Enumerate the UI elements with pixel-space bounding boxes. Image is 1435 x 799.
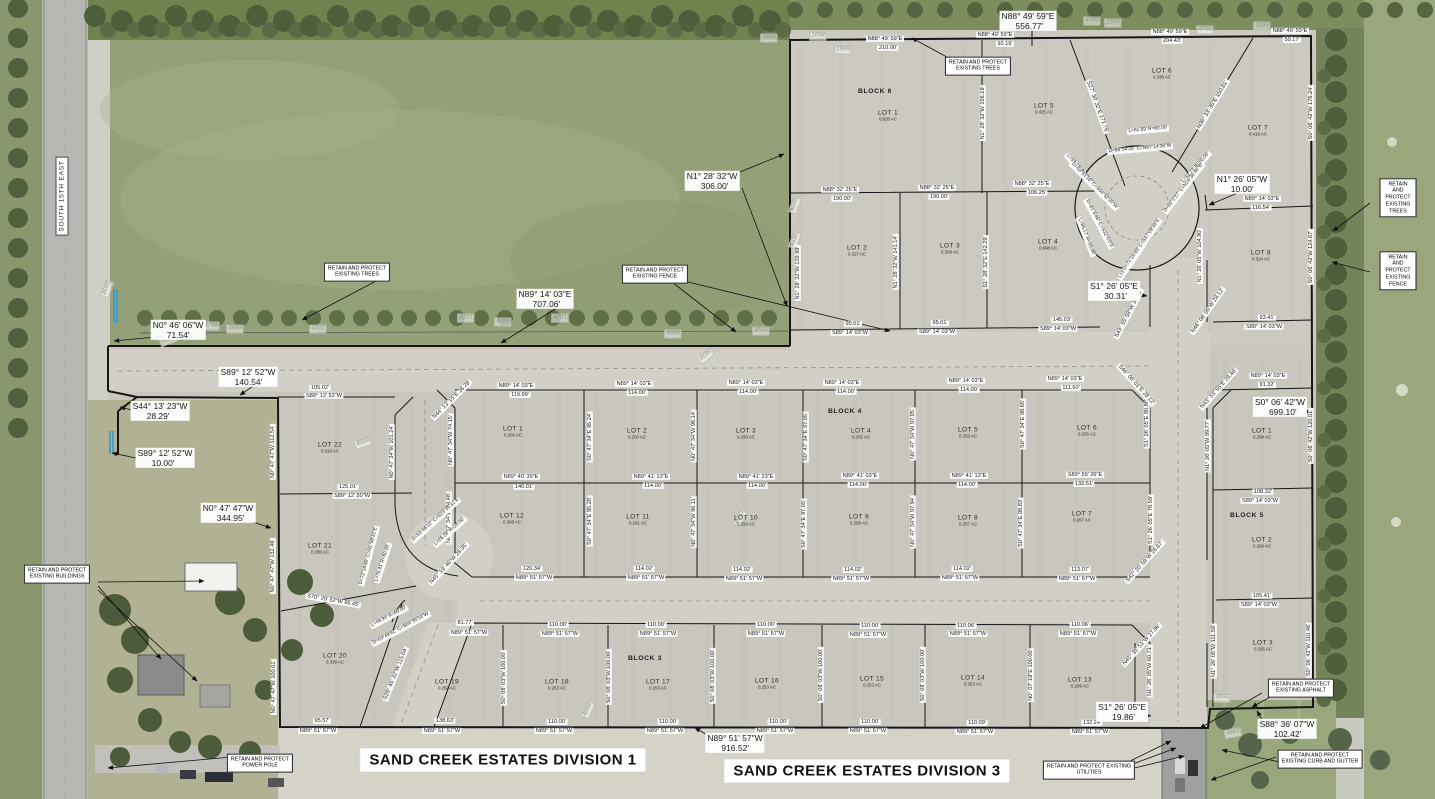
lot-label: LOT 150.253 AC bbox=[860, 676, 884, 689]
dim-label: N0° 47' 47"W 132.46' bbox=[270, 538, 276, 594]
dim-label: 114.02' bbox=[732, 567, 753, 573]
contour-label: 4698 bbox=[664, 330, 681, 339]
dim-label: S0° 08' 03"W 100.00' bbox=[710, 648, 716, 704]
bearing-callout: N88° 49' 59"E556.77' bbox=[1000, 11, 1057, 31]
lot-label: LOT 80.257 AC bbox=[958, 515, 978, 528]
dim-label: 114.00' bbox=[836, 389, 857, 395]
contour-label: 4699 bbox=[752, 327, 769, 336]
dim-label: N0° 47' 34"W 96.11' bbox=[691, 496, 697, 548]
lot-label: LOT 220.318 AC bbox=[318, 442, 342, 455]
dim-label: S89° 14' 03"W bbox=[1240, 498, 1279, 504]
dim-label: N1° 26' 05"W 104.90' bbox=[1197, 228, 1203, 284]
contour-label: 4693 bbox=[1213, 694, 1230, 703]
dim-label: N36° 33' 35"E 150.81' bbox=[1195, 79, 1230, 132]
dim-label: 81.77' bbox=[456, 620, 474, 626]
lot-label: LOT 30.250 AC bbox=[736, 428, 756, 441]
block-label: BLOCK 3 bbox=[626, 655, 663, 663]
bearing-callout: S89° 12' 52"W10.00' bbox=[136, 448, 195, 468]
dim-label: S0° 06' 42"W 120.01' bbox=[1308, 408, 1314, 464]
contour-label: 4693 bbox=[1224, 727, 1243, 739]
bearing-callout: S0° 06' 42"W699.10' bbox=[1253, 397, 1307, 417]
dim-label: 108.32' bbox=[1252, 489, 1273, 495]
dim-label: N43° 55' 55"E 28.46' bbox=[1198, 367, 1239, 412]
dim-label: N45° 19' 46"W 28.05' bbox=[428, 541, 471, 586]
lot-label: LOT 110.261 AC bbox=[626, 514, 649, 527]
lot-label: LOT 70.267 AC bbox=[1072, 511, 1092, 524]
dim-label: 110.00' bbox=[646, 622, 667, 628]
dim-label: S89° 12' 52"W bbox=[304, 393, 343, 399]
dim-label: N89° 51' 57"W bbox=[848, 632, 887, 638]
lot-label: LOT 10.820 AC bbox=[878, 110, 898, 123]
lot-label: LOT 170.253 AC bbox=[646, 679, 670, 692]
dim-label: S0° 08' 03"W 100.00' bbox=[920, 647, 926, 703]
dim-label: 110.09' bbox=[967, 720, 988, 726]
dim-label: 190.00' bbox=[831, 196, 852, 202]
dim-label: N0° 47' 34"W 96.14' bbox=[691, 410, 697, 463]
dim-label: N1° 28' 32"W 139.99' bbox=[795, 245, 801, 301]
dim-label: 95.01' bbox=[931, 320, 949, 326]
dim-label: S0° 47' 34"E 97.05' bbox=[801, 498, 807, 549]
dim-label: N89° 51' 57"W bbox=[724, 576, 763, 582]
dim-label: S89° 14' 03"W bbox=[1239, 602, 1278, 608]
street-name-label: SOUTH 15TH EAST bbox=[56, 156, 69, 235]
lot-label: LOT 10.298 AC bbox=[1252, 428, 1272, 441]
plat-map-screenshot: 4698169816994700169947001699470147004701… bbox=[0, 0, 1435, 799]
dim-label: S89° 14' 03"W bbox=[830, 330, 869, 336]
dim-label: N89° 41' 03"E bbox=[841, 473, 879, 479]
dim-label: N0° 47' 34"W 97.94' bbox=[910, 496, 916, 549]
lot-label: LOT 30.265 AC bbox=[1253, 640, 1273, 653]
dim-label: S89° 59' 26"E bbox=[1066, 472, 1104, 478]
lot-label: LOT 60.256 AC bbox=[1077, 425, 1097, 438]
dim-label: 114.02' bbox=[634, 566, 655, 572]
dim-label: N1° 26' 05"W 60.71' bbox=[1147, 645, 1153, 698]
dim-label: S0° 06' 42"W 110.46' bbox=[1306, 622, 1312, 677]
block-label: BLOCK 4 bbox=[826, 408, 863, 416]
lot-label: LOT 90.256 AC bbox=[849, 514, 869, 527]
lot-label: LOT 50.425 AC bbox=[1034, 103, 1054, 116]
dim-label: N89° 51' 57"W bbox=[940, 575, 979, 581]
dim-label: N1° 28' 32"W 156.19' bbox=[980, 85, 986, 141]
contour-label: 4700 bbox=[494, 318, 511, 327]
dim-label: N89° 51' 57"W bbox=[848, 728, 887, 734]
curve-data-label: D=53°46'10" C=S23°35'31"E bbox=[410, 496, 462, 543]
lot-label: LOT 200.339 AC bbox=[323, 653, 347, 666]
lot-label: LOT 70.419 AC bbox=[1248, 125, 1268, 138]
dim-label: N89° 14' 03"E bbox=[823, 380, 861, 386]
dim-label: N89° 51' 57"W bbox=[1058, 631, 1097, 637]
dim-label: N89° 51' 57"W bbox=[955, 729, 994, 735]
dim-label: 138.63' bbox=[434, 718, 455, 724]
bearing-callout: N89° 51' 57"W916.52' bbox=[705, 733, 764, 753]
dim-label: 204.43' bbox=[1161, 38, 1182, 44]
bearing-callout: S1° 26' 05"E30.31' bbox=[1088, 281, 1140, 301]
dim-label: N89° 51' 57"W bbox=[298, 728, 337, 734]
curve-data-label: D=59°51'16" C=S59°52'35"W bbox=[1069, 161, 1119, 211]
dim-label: 190.00' bbox=[928, 194, 949, 200]
dim-label: N0° 47' 34"W 74.15' bbox=[448, 414, 454, 467]
dim-label: 113.07' bbox=[1070, 567, 1091, 573]
dim-label: S0° 47' 34"E 98.83' bbox=[1018, 497, 1024, 548]
lot-label: LOT 210.280 AC bbox=[308, 543, 332, 556]
dim-label: N88° 32' 25"E bbox=[1013, 181, 1051, 187]
bearing-callout: N0° 46' 06"W71.54' bbox=[151, 320, 206, 340]
dim-label: 114.00' bbox=[643, 483, 664, 489]
lot-label: LOT 190.250 AC bbox=[435, 679, 459, 692]
dim-label: N0° 07' 19"E 100.00' bbox=[1028, 648, 1034, 702]
retain-protect-callout: RETAIN AND PROTECTEXISTING TREES bbox=[1380, 178, 1417, 217]
dim-label: 210.00' bbox=[877, 45, 898, 51]
dim-label: 110.00' bbox=[860, 623, 881, 629]
dim-label: 106.25' bbox=[1026, 190, 1047, 196]
dim-label: 50.17' bbox=[1283, 37, 1301, 43]
dim-label: N89° 14' 03"E bbox=[615, 381, 653, 387]
dim-label: 114.02' bbox=[952, 566, 973, 572]
dim-label: S0° 47' 34"E 95.28' bbox=[587, 495, 593, 546]
dim-label: 145.03' bbox=[1051, 317, 1072, 323]
dim-label: N88° 49' 59"E bbox=[866, 36, 904, 42]
dim-label: 110.00' bbox=[548, 622, 569, 628]
dim-label: N89° 51' 57"W bbox=[514, 575, 553, 581]
lot-label: LOT 40.255 AC bbox=[851, 428, 871, 441]
dim-label: N89° 14' 03"E bbox=[727, 380, 765, 386]
dim-label: N89° 51' 57"W bbox=[540, 631, 579, 637]
dim-label: N89° 51' 57"W bbox=[422, 728, 461, 734]
dim-label: N89° 41' 23"E bbox=[737, 474, 775, 480]
lot-label: LOT 80.324 AC bbox=[1251, 250, 1271, 263]
dim-label: N89° 51' 57"W bbox=[1070, 729, 1109, 735]
lot-label: LOT 20.266 AC bbox=[1252, 537, 1272, 550]
dim-label: N88° 49' 59"E bbox=[1271, 28, 1309, 34]
dim-label: N89° 51' 57"W bbox=[1057, 576, 1096, 582]
contour-label: 4700 bbox=[1196, 26, 1213, 35]
lot-label: LOT 10.260 AC bbox=[503, 426, 523, 439]
contour-label: 1699 bbox=[1104, 19, 1121, 28]
lot-label: LOT 50.256 AC bbox=[958, 427, 978, 440]
dim-label: N89° 41' 13"E bbox=[950, 473, 988, 479]
contour-label: 1698 bbox=[809, 32, 826, 41]
bearing-callout: N89° 14' 03"E707.06' bbox=[517, 289, 574, 309]
dim-label: 91.32' bbox=[1258, 382, 1276, 388]
dim-label: N0° 47' 34"W 97.95' bbox=[910, 408, 916, 461]
dim-label: 116.54' bbox=[1251, 205, 1272, 211]
dim-label: 114.00' bbox=[848, 482, 869, 488]
dim-label: 111.60' bbox=[1061, 385, 1081, 391]
dim-label: N89° 51' 57"W bbox=[831, 576, 870, 582]
dim-label: N88° 32' 25"E bbox=[918, 185, 956, 191]
curve-data-label: D=50°2'27" C=N26°36'46"W bbox=[1162, 161, 1205, 214]
curve-data-label: L=85.17' R=60.00' bbox=[1076, 217, 1097, 258]
curve-data-label: L=61.69' R=60.00' bbox=[1127, 125, 1169, 134]
retain-protect-callout: RETAIN AND PROTECT EXISTINGUTILITIES bbox=[1043, 761, 1135, 780]
lot-label: LOT 130.296 AC bbox=[1068, 677, 1092, 690]
dim-label: S46° 06' 01"E 28.12' bbox=[1115, 363, 1156, 408]
dim-label: S0° 47' 34"E 98.65' bbox=[1020, 398, 1026, 449]
dim-label: S89° 14' 03"W bbox=[1244, 324, 1283, 330]
contour-label: 4699 bbox=[788, 195, 802, 214]
bearing-callout: N0° 47' 47"W344.95' bbox=[201, 503, 256, 523]
dim-label: N88° 32' 25"E bbox=[821, 187, 859, 193]
dim-label: S1° 28' 32"E 142.29' bbox=[983, 235, 989, 289]
dim-label: S1° 26' 05"E 78.59' bbox=[1148, 494, 1154, 545]
dim-label: S89° 14' 03"W bbox=[917, 329, 956, 335]
contour-label: 1699 bbox=[834, 46, 851, 55]
retain-protect-callout: RETAIN AND PROTECTEXISTING TREES bbox=[945, 57, 1011, 76]
curve-data-label: L=75.41' R=60.00' bbox=[374, 542, 392, 584]
dim-label: N89° 51' 57"W bbox=[626, 575, 665, 581]
dim-label: S42° 20' 59"W 28.67' bbox=[1124, 539, 1166, 585]
contour-label: 4701 bbox=[457, 314, 474, 323]
dim-label: 95.57' bbox=[313, 718, 331, 724]
bearing-callout: S89° 12' 52"W140.54' bbox=[219, 367, 278, 387]
dim-label: N89° 14' 03"E bbox=[1046, 376, 1084, 382]
dim-label: N1° 28' 32"W 141.14' bbox=[893, 234, 899, 290]
dim-label: 114.00' bbox=[957, 482, 978, 488]
dim-label: 110.06' bbox=[956, 623, 977, 629]
dim-label: N0° 47' 47"W 100.01' bbox=[271, 659, 277, 715]
retain-protect-callout: RETAIN AND PROTECTPOWER POLE bbox=[227, 754, 293, 773]
lot-label: LOT 20.327 AC bbox=[847, 245, 867, 258]
block-label: BLOCK 5 bbox=[1228, 512, 1265, 520]
dim-label: 120.34' bbox=[521, 566, 542, 572]
dim-label: 114.00' bbox=[959, 387, 980, 393]
dim-label: N1° 26' 05"W 111.59' bbox=[1211, 623, 1217, 678]
bearing-callout: N1° 26' 05"W10.00' bbox=[1215, 174, 1270, 194]
dim-label: N89° 40' 39"E bbox=[502, 474, 540, 480]
dim-label: N89° 51' 57"W bbox=[534, 728, 573, 734]
dim-label: N88° 49' 59"E bbox=[1151, 29, 1189, 35]
lot-label: LOT 180.253 AC bbox=[545, 679, 569, 692]
contour-label: 4701 bbox=[309, 325, 326, 334]
lot-label: LOT 100.250 AC bbox=[734, 515, 758, 528]
retain-protect-callout: RETAIN AND PROTECTEXISTING TREES bbox=[324, 263, 390, 282]
division3-title: SAND CREEK ESTATES DIVISION 3 bbox=[724, 760, 1009, 783]
lot-label: LOT 40.698 AC bbox=[1038, 239, 1058, 252]
bearing-callout: S88° 36' 07"W102.42' bbox=[1258, 719, 1317, 739]
division1-title: SAND CREEK ESTATES DIVISION 1 bbox=[360, 749, 645, 772]
contour-label: 4701 bbox=[551, 314, 568, 323]
dim-label: N89° 14' 03"E bbox=[1249, 373, 1287, 379]
dim-label: 114.00' bbox=[738, 389, 759, 395]
curve-data-label: D=63°49'41" C=S64°35'54"W bbox=[371, 611, 432, 647]
dim-label: S70° 29' 52"W 95.45' bbox=[305, 593, 361, 609]
dim-label: S0° 08' 03"W 100.00' bbox=[818, 647, 824, 703]
dim-label: S0° 47' 34"E 97.05' bbox=[803, 411, 809, 462]
dim-label: N89° 51' 57"W bbox=[638, 631, 677, 637]
contour-label: 4699 bbox=[226, 325, 243, 334]
contour-label: 4698 bbox=[100, 279, 114, 298]
lot-label: LOT 60.338 AC bbox=[1152, 68, 1172, 81]
labels-layer: 4698169816994700169947001699470147004701… bbox=[0, 0, 1435, 799]
contour-label: 4699 bbox=[353, 436, 372, 450]
retain-protect-callout: RETAIN AND PROTECTEXISTING CURB AND GUTT… bbox=[1278, 750, 1363, 769]
dim-label: 93.41' bbox=[1258, 315, 1276, 321]
dim-label: 114.02' bbox=[843, 567, 864, 573]
dim-label: 110.06' bbox=[1070, 622, 1091, 628]
lot-label: LOT 140.253 AC bbox=[961, 675, 985, 688]
dim-label: S0° 08' 03"W 100.00' bbox=[501, 650, 507, 706]
dim-label: N89° 51' 57"W bbox=[449, 630, 488, 636]
dim-label: S0° 08' 03"W 100.00' bbox=[606, 649, 612, 705]
dim-label: 110.00' bbox=[860, 719, 881, 725]
curve-data-label: D=58°54'25" C=N87°14'38"W bbox=[1107, 143, 1173, 154]
contour-label: 1699 bbox=[1253, 22, 1270, 31]
dim-label: 119.99' bbox=[510, 392, 531, 398]
bearing-callout: S44° 13' 23"W28.29' bbox=[131, 401, 190, 421]
dim-label: N1° 26' 05"W 99.77' bbox=[1205, 420, 1211, 473]
dim-label: N45° 35' 51"W 27.86' bbox=[1121, 622, 1163, 668]
dim-label: 114.00' bbox=[627, 390, 648, 396]
dim-label: N89° 14' 03"E bbox=[497, 383, 535, 389]
curve-data-label: D=71°26'49" C=S37°09'39"E bbox=[1121, 217, 1162, 273]
contour-label: 4698 bbox=[760, 34, 777, 43]
dim-label: S0° 06' 42"W 124.67' bbox=[1308, 229, 1314, 285]
dim-label: N88° 49' 59"E bbox=[976, 32, 1014, 38]
contour-label: 4698 bbox=[580, 700, 595, 719]
dim-label: N0° 47' 47"W 112.54' bbox=[270, 424, 276, 480]
dim-label: 132.51' bbox=[1073, 481, 1094, 487]
dim-label: S27° 30' 32"E 171.76' bbox=[1084, 79, 1110, 135]
dim-label: 110.00' bbox=[658, 719, 679, 725]
dim-label: S0° 06' 42"W 176.24' bbox=[1308, 85, 1314, 141]
dim-label: 125.01' bbox=[337, 484, 358, 490]
dim-label: S29° 45' 32"W 115.04' bbox=[382, 646, 410, 703]
retain-protect-callout: RETAIN AND PROTECTEXISTING FENCE bbox=[1380, 251, 1417, 290]
bearing-callout: S1° 26' 05"E19.86' bbox=[1096, 702, 1148, 722]
block-label: BLOCK 6 bbox=[856, 88, 893, 96]
dim-label: N89° 51' 57"W bbox=[645, 728, 684, 734]
dim-label: 105.02' bbox=[309, 385, 330, 391]
retain-protect-callout: RETAIN AND PROTECTEXISTING FENCE bbox=[622, 265, 688, 284]
dim-label: 95.01' bbox=[844, 321, 862, 327]
contour-label: 4700 bbox=[1083, 17, 1100, 26]
dim-label: 114.00' bbox=[747, 483, 768, 489]
lot-label: LOT 20.250 AC bbox=[627, 428, 647, 441]
dim-label: N89° 41' 13"E bbox=[632, 474, 670, 480]
contour-label: 4698 bbox=[696, 347, 715, 365]
dim-label: 110.00' bbox=[547, 719, 568, 725]
dim-label: N89° 51' 57"W bbox=[948, 631, 987, 637]
dim-label: N89° 14' 03"E bbox=[1243, 196, 1281, 202]
lot-label: LOT 160.253 AC bbox=[755, 678, 779, 691]
dim-label: N0° 47' 34"W 101.24' bbox=[389, 424, 395, 480]
dim-label: N89° 51' 57"W bbox=[746, 631, 785, 637]
dim-label: 140.01' bbox=[513, 484, 534, 490]
dim-label: 110.00' bbox=[756, 622, 777, 628]
dim-label: 92.16' bbox=[996, 41, 1014, 47]
retain-protect-callout: RETAIN AND PROTECTEXISTING BUILDINGS bbox=[24, 565, 90, 584]
lot-label: LOT 120.308 AC bbox=[500, 513, 524, 526]
dim-label: N46° 06' 05"W 28.12' bbox=[1189, 286, 1226, 336]
dim-label: S89° 14' 03"W bbox=[1038, 326, 1077, 332]
lot-label: LOT 30.309 AC bbox=[940, 243, 960, 256]
dim-label: 105.41' bbox=[1251, 593, 1272, 599]
dim-label: N89° 14' 03"E bbox=[947, 378, 985, 384]
dim-label: 110.00' bbox=[768, 719, 789, 725]
bearing-callout: N1° 28' 32"W306.00' bbox=[685, 171, 740, 191]
dim-label: S89° 12' 50"W bbox=[332, 493, 371, 499]
retain-protect-callout: RETAIN AND PROTECTEXISTING ASPHALT bbox=[1268, 679, 1334, 698]
dim-label: S0° 47' 34"E 95.24' bbox=[587, 411, 593, 462]
